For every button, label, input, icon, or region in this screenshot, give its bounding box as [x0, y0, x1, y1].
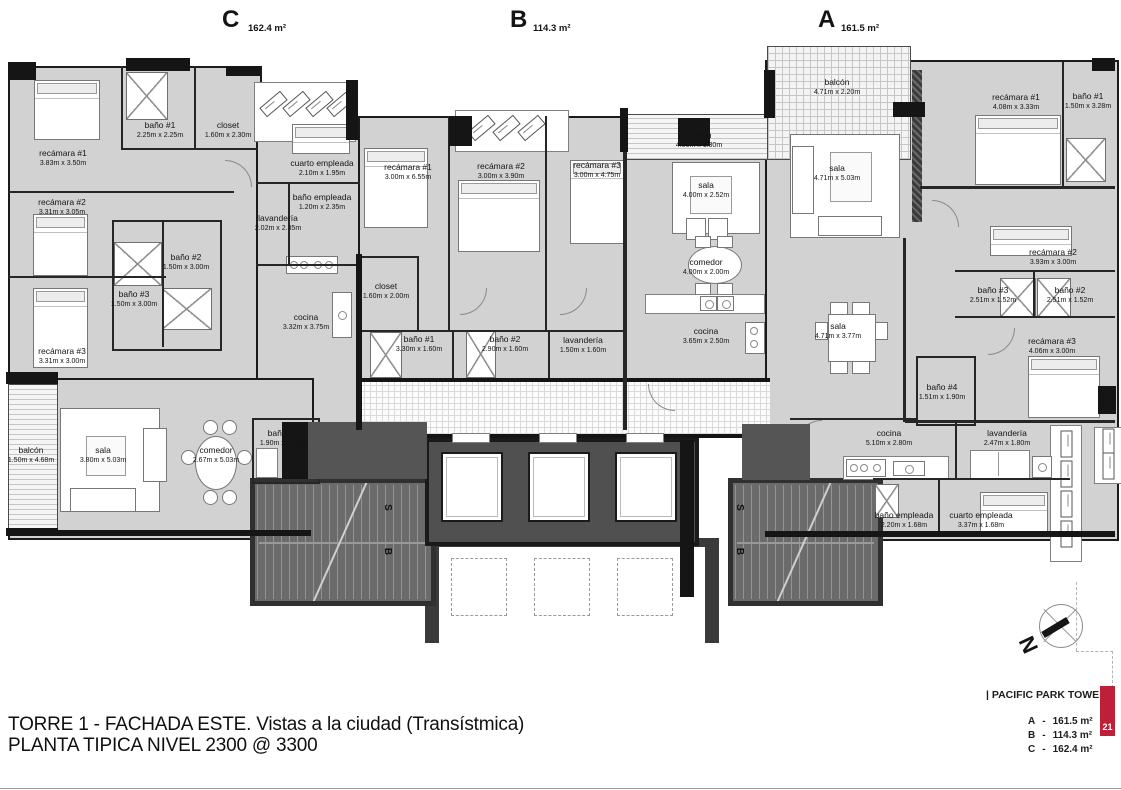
section-area-b: 114.3 m²	[533, 23, 571, 34]
legend-area: 162.4 m²	[1053, 744, 1093, 755]
room-label-a-recamara3: recámara #34.06m x 3.00m	[1028, 336, 1076, 356]
room-dims: 2.20m x 1.68m	[875, 521, 934, 530]
wall-bottom-c	[8, 530, 311, 536]
room-name: baño empleada	[293, 192, 352, 203]
wall	[162, 220, 164, 347]
room-name: closet	[205, 120, 251, 131]
stair-up-label: S	[382, 504, 393, 511]
shower-icon	[1066, 138, 1106, 182]
room-label-c-sala: sala3.80m x 5.03m	[80, 445, 126, 465]
room-dims: 3.32m x 3.75m	[283, 323, 329, 332]
room-name: recámara #1	[39, 148, 87, 159]
elevator-pit-outline	[617, 558, 673, 616]
chair-icon	[695, 236, 711, 248]
chair-icon	[875, 322, 888, 340]
room-name: baño #2	[482, 334, 528, 345]
room-dims: 4.71m x 2.20m	[814, 88, 860, 97]
room-dims: 3.30m x 1.60m	[396, 345, 442, 354]
room-label-c-closet2: closet1.60m x 2.00m	[363, 281, 409, 301]
room-dims: 4.00m x 1.30m	[676, 141, 722, 150]
room-label-a-bano2: baño #22.51m x 1.52m	[1047, 285, 1093, 305]
wall	[955, 270, 1115, 272]
chair-icon	[237, 450, 252, 465]
wall-bottom-a	[765, 531, 1115, 537]
wall-column	[6, 372, 58, 384]
room-name: balcón	[676, 130, 722, 141]
room-label-c-cuarto-empleada: cuarto empleada2.10m x 1.95m	[290, 158, 353, 178]
room-dims: 2.67m x 5.03m	[193, 456, 239, 465]
room-name: recámara #3	[1028, 336, 1076, 347]
room-label-c-bano4: baño #41.90m x 1.55m	[260, 428, 306, 448]
room-label-c-lavanderia: lavandería2.02m x 2.35m	[255, 213, 301, 233]
plan-title-line1: TORRE 1 - FACHADA ESTE. Vistas a la ciud…	[8, 714, 524, 736]
stairwell-right	[728, 478, 883, 606]
wall-column	[356, 254, 362, 430]
wall	[955, 420, 957, 480]
wall	[920, 186, 1115, 189]
wall	[1062, 62, 1064, 188]
room-label-a-bano-empleada: baño empleada2.20m x 1.68m	[875, 510, 934, 530]
room-dims: 1.60m x 2.30m	[205, 131, 251, 140]
legend-row-c: C-162.4 m²	[1028, 744, 1093, 755]
stair-down-label: B	[382, 548, 393, 555]
legend-separator: -	[1042, 730, 1045, 741]
room-label-a-bano3: baño #32.51m x 1.52m	[970, 285, 1016, 305]
bed-icon	[1028, 356, 1100, 418]
wall	[8, 191, 234, 193]
room-label-b-bano2: baño #22.90m x 1.60m	[482, 334, 528, 354]
sink-icon	[1032, 456, 1052, 478]
sink-icon	[332, 292, 352, 338]
room-label-b-recamara1: recámara #13.00m x 6.55m	[384, 162, 432, 182]
room-dims: 3.80m x 5.03m	[80, 456, 126, 465]
room-dims: 1.50m x 3.28m	[1065, 102, 1111, 111]
wall-column	[893, 102, 925, 117]
bath-block-c	[112, 220, 222, 351]
lounge-chair-icon	[1061, 491, 1073, 518]
wall	[448, 116, 450, 332]
wall	[121, 66, 123, 150]
room-dims: 2.90m x 1.60m	[482, 345, 528, 354]
stair-down-label: B	[734, 548, 745, 555]
brand-label: | PACIFIC PARK TOWERS	[986, 689, 1114, 701]
section-letter-b: B	[510, 6, 527, 34]
chair-icon	[830, 302, 848, 315]
wall	[903, 238, 906, 422]
wall	[955, 316, 1115, 318]
wall	[790, 418, 916, 420]
room-dims: 1.20m x 2.35m	[293, 203, 352, 212]
room-dims: 2.51m x 1.52m	[970, 296, 1016, 305]
room-name: sala	[683, 180, 729, 191]
divider	[998, 452, 999, 476]
legend-area: 161.5 m²	[1053, 716, 1093, 727]
room-label-a-recamara2: recámara #23.93m x 3.00m	[1029, 247, 1077, 267]
room-dims: 1.51m x 1.90m	[919, 393, 965, 402]
wall	[362, 330, 625, 332]
room-label-a-bano1: baño #11.50m x 3.28m	[1065, 91, 1111, 111]
room-dims: 1.50m x 1.60m	[560, 346, 606, 355]
room-name: recámara #3	[38, 346, 86, 357]
wall-hatched	[912, 70, 922, 222]
room-label-a-recamara1: recámara #14.08m x 3.33m	[992, 92, 1040, 112]
room-name: lavandería	[560, 335, 606, 346]
room-dims: 4.00m x 2.00m	[683, 268, 729, 277]
room-dims: 1.50m x 4.68m	[8, 456, 54, 465]
sofa-icon	[792, 146, 814, 214]
room-name: sala	[814, 163, 860, 174]
room-dims: 1.50m x 3.00m	[111, 300, 157, 309]
legend-unit: A	[1028, 716, 1035, 727]
room-name: recámara #2	[38, 197, 86, 208]
room-name: sala	[80, 445, 126, 456]
room-name: cocina	[866, 428, 912, 439]
room-name: baño #2	[1047, 285, 1093, 296]
wall	[8, 276, 166, 278]
room-name: baño #4	[919, 382, 965, 393]
wall	[1033, 270, 1035, 318]
elevator-door	[539, 433, 577, 443]
room-dims: 3.31m x 3.05m	[38, 208, 86, 217]
sink-icon	[717, 296, 734, 311]
room-dims: 4.06m x 3.00m	[1028, 347, 1076, 356]
bed-icon	[34, 80, 100, 140]
lounge-chair-icon	[1061, 461, 1073, 488]
room-name: recámara #2	[477, 161, 525, 172]
room-label-b-lavanderia: lavandería1.50m x 1.60m	[560, 335, 606, 355]
room-label-c-comedor: comedor2.67m x 5.03m	[193, 445, 239, 465]
room-name: baño #1	[1065, 91, 1111, 102]
room-name: balcón	[814, 77, 860, 88]
wall	[452, 330, 454, 378]
elevator-cabin	[615, 452, 677, 522]
chair-icon	[222, 420, 237, 435]
room-label-c-bano3: baño #31.50m x 3.00m	[111, 289, 157, 309]
room-name: recámara #1	[992, 92, 1040, 103]
wall-column	[1092, 58, 1115, 71]
room-label-a-cuarto-empleada: cuarto empleada3.37m x 1.68m	[949, 510, 1012, 530]
room-dims: 2.51m x 1.52m	[1047, 296, 1093, 305]
elevator-door	[452, 433, 490, 443]
chair-icon	[852, 302, 870, 315]
chair-icon	[852, 361, 870, 374]
wall	[545, 116, 547, 332]
chair-icon	[203, 490, 218, 505]
wall-column	[1098, 386, 1116, 414]
legend-unit: C	[1028, 744, 1035, 755]
room-dims: 1.90m x 1.55m	[260, 439, 306, 448]
room-name: closet	[363, 281, 409, 292]
room-label-b-balcon: balcón4.00m x 1.30m	[676, 130, 722, 150]
stair-lobby-left	[308, 422, 427, 479]
sofa-icon	[70, 488, 136, 512]
room-dims: 3.00m x 3.90m	[477, 172, 525, 181]
wall-column	[226, 66, 260, 76]
room-label-c-recamara2: recámara #23.31m x 3.05m	[38, 197, 86, 217]
lounge-chair-icon	[1061, 431, 1073, 458]
wall-column	[449, 116, 472, 146]
room-label-b-comedor: comedor4.00m x 2.00m	[683, 257, 729, 277]
stove-icon	[846, 459, 886, 477]
room-name: baño empleada	[875, 510, 934, 521]
room-label-a-lavanderia: lavandería2.47m x 1.80m	[984, 428, 1030, 448]
room-dims: 5.10m x 2.80m	[866, 439, 912, 448]
room-label-c-recamara3: recámara #33.31m x 3.00m	[38, 346, 86, 366]
room-name: baño #1	[137, 120, 183, 131]
elevator-cabin	[441, 452, 503, 522]
room-dims: 1.50m x 3.00m	[163, 263, 209, 272]
room-label-a-bano4: baño #41.51m x 1.90m	[919, 382, 965, 402]
room-label-b-sala: sala4.00m x 2.52m	[683, 180, 729, 200]
room-name: baño #2	[163, 252, 209, 263]
sofa-icon	[143, 428, 167, 482]
room-label-b-bano1: baño #13.30m x 1.60m	[396, 334, 442, 354]
elevator-pit-outline	[451, 558, 507, 616]
leader-dash-line	[1112, 651, 1113, 688]
room-name: baño #1	[396, 334, 442, 345]
chair-icon	[717, 236, 733, 248]
room-dims: 3.65m x 2.50m	[683, 337, 729, 346]
wall-column	[346, 80, 358, 140]
chair-icon	[203, 420, 218, 435]
room-label-b-recamara3: recámara #33.00m x 4.75m	[573, 160, 621, 180]
elevator-cabin	[528, 452, 590, 522]
plan-title-line2: PLANTA TIPICA NIVEL 2300 @ 3300	[8, 735, 318, 757]
room-name: baño #3	[970, 285, 1016, 296]
room-dims: 2.47m x 1.80m	[984, 439, 1030, 448]
room-label-c-recamara1: recámara #13.83m x 3.50m	[39, 148, 87, 168]
stair-up-label: S	[734, 504, 745, 511]
room-dims: 3.93m x 3.00m	[1029, 258, 1077, 267]
elevator-door	[626, 433, 664, 443]
room-label-a-cocina: cocina5.10m x 2.80m	[866, 428, 912, 448]
shower-icon	[126, 72, 168, 120]
section-letter-c: C	[222, 6, 239, 34]
page-number: 21	[1102, 722, 1112, 732]
wall	[121, 148, 258, 150]
room-dims: 2.10m x 1.95m	[290, 169, 353, 178]
room-dims: 4.00m x 2.52m	[683, 191, 729, 200]
stair-lobby-right	[742, 424, 810, 480]
room-name: baño #3	[111, 289, 157, 300]
room-dims: 3.00m x 4.75m	[573, 171, 621, 180]
legend-area: 114.3 m²	[1053, 730, 1092, 741]
room-dims: 4.08m x 3.33m	[992, 103, 1040, 112]
leader-dash-line	[1076, 582, 1077, 651]
wall	[623, 112, 627, 430]
room-label-c-bano1: baño #12.25m x 2.25m	[137, 120, 183, 140]
wall	[194, 66, 196, 150]
stair-landing	[259, 542, 427, 544]
chair-icon	[222, 490, 237, 505]
room-name: balcón	[8, 445, 54, 456]
chair-icon	[830, 361, 848, 374]
stair-landing	[737, 542, 874, 544]
section-letter-a: A	[818, 6, 835, 34]
lounge-chair-icon	[1103, 429, 1115, 456]
room-name: comedor	[193, 445, 239, 456]
wall-column	[620, 108, 628, 152]
room-dims: 2.02m x 2.35m	[255, 224, 301, 233]
room-name: lavandería	[255, 213, 301, 224]
room-name: lavandería	[984, 428, 1030, 439]
wall	[905, 420, 1115, 423]
legend-row-a: A-161.5 m²	[1028, 716, 1093, 727]
room-label-b-recamara2: recámara #23.00m x 3.90m	[477, 161, 525, 181]
page-bottom-rule	[0, 788, 1121, 789]
section-area-c: 162.4 m²	[248, 23, 286, 34]
section-area-a: 161.5 m²	[841, 23, 879, 34]
legend-unit: B	[1028, 730, 1035, 741]
bed-icon	[364, 148, 428, 228]
room-name: recámara #1	[384, 162, 432, 173]
wall-column	[764, 70, 775, 118]
room-label-c-cocina: cocina3.32m x 3.75m	[283, 312, 329, 332]
bed-icon	[975, 115, 1061, 185]
room-name: recámara #2	[1029, 247, 1077, 258]
legend-separator: -	[1042, 744, 1045, 755]
room-dims: 3.00m x 6.55m	[384, 173, 432, 182]
room-dims: 3.31m x 3.00m	[38, 357, 86, 366]
stairwell-left	[250, 478, 436, 606]
leader-dash-line	[1076, 651, 1113, 652]
wall	[873, 478, 1070, 480]
compass-north-label: N	[1013, 632, 1043, 657]
page-number-tab: 21	[1100, 686, 1115, 736]
wall-column	[126, 58, 190, 71]
room-label-c-bano-empleada: baño empleada1.20m x 2.35m	[293, 192, 352, 212]
sink-icon	[700, 296, 717, 311]
room-dims: 2.25m x 2.25m	[137, 131, 183, 140]
wall	[938, 480, 940, 535]
room-label-c-balcon: balcón1.50m x 4.68m	[8, 445, 54, 465]
bed-icon	[458, 180, 540, 252]
legend-row-b: B-114.3 m²	[1028, 730, 1092, 741]
room-name: recámara #3	[573, 160, 621, 171]
room-name: sala	[815, 321, 861, 332]
wall-column	[680, 440, 694, 597]
room-name: comedor	[683, 257, 729, 268]
room-label-a-sala: sala4.71m x 5.03m	[814, 163, 860, 183]
room-dims: 1.60m x 2.00m	[363, 292, 409, 301]
elevator-pit-outline	[534, 558, 590, 616]
washer-dryer-icon	[970, 450, 1030, 480]
bed-icon	[33, 214, 88, 276]
room-label-c-bano2: baño #21.50m x 3.00m	[163, 252, 209, 272]
room-label-a-sala2: sala4.71m x 3.77m	[815, 321, 861, 341]
room-name: cocina	[683, 326, 729, 337]
sofa-icon	[818, 216, 882, 236]
room-name: baño #4	[260, 428, 306, 439]
room-dims: 3.37m x 1.68m	[949, 521, 1012, 530]
room-name: cocina	[283, 312, 329, 323]
wall	[256, 182, 360, 184]
bed-icon	[292, 124, 350, 154]
room-name: cuarto empleada	[949, 510, 1012, 521]
room-label-b-cocina: cocina3.65m x 2.50m	[683, 326, 729, 346]
room-dims: 4.71m x 3.77m	[815, 332, 861, 341]
floor-plan: C 162.4 m² B 114.3 m² A 161.5 m²	[0, 0, 1121, 790]
wall	[548, 330, 550, 378]
lounge-chair-icon	[1103, 453, 1115, 480]
room-label-a-balcon: balcón4.71m x 2.20m	[814, 77, 860, 97]
room-name: cuarto empleada	[290, 158, 353, 169]
room-label-c-closet1: closet1.60m x 2.30m	[205, 120, 251, 140]
stove-icon	[745, 322, 765, 354]
room-dims: 4.71m x 5.03m	[814, 174, 860, 183]
legend-separator: -	[1042, 716, 1045, 727]
wall	[256, 264, 360, 266]
wall-column	[8, 62, 36, 80]
sink-icon	[893, 461, 925, 476]
room-dims: 3.83m x 3.50m	[39, 159, 87, 168]
